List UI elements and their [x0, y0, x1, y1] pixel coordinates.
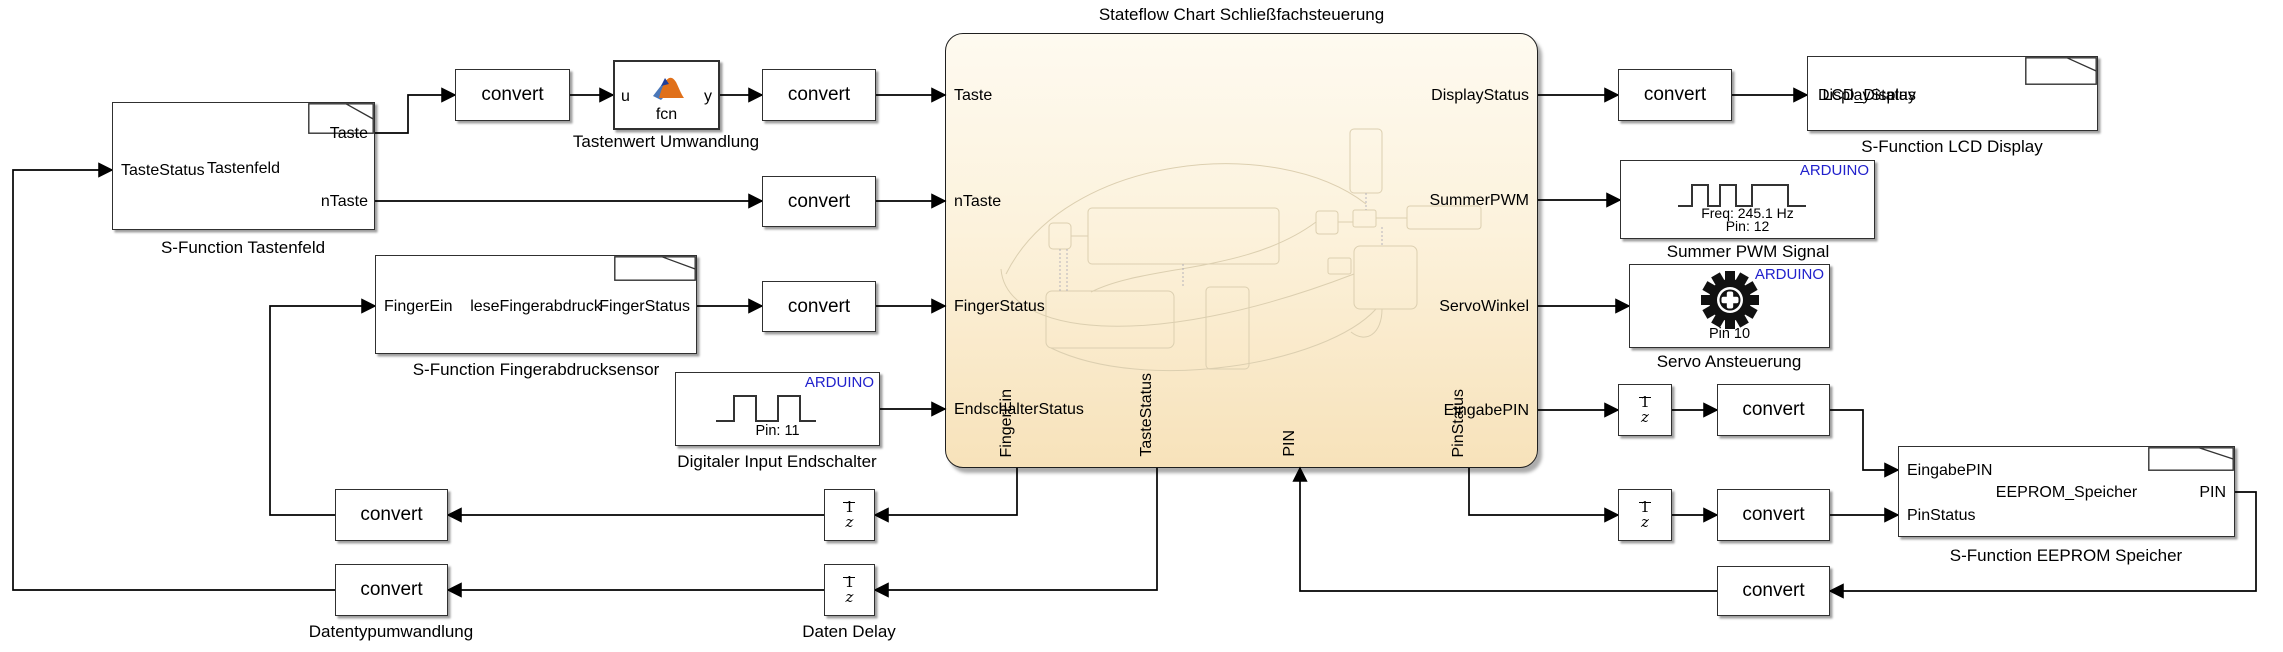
lcd-display-block[interactable]: DisplayStatus LCD_Display	[1807, 56, 2098, 131]
chart-output-summerpwm: SummerPWM	[1429, 192, 1529, 210]
summer-pin-label: Pin: 12	[1621, 220, 1874, 233]
chart-bottom-port-pinstatus: PinStatus	[1450, 389, 1468, 457]
fingerabdruck-block[interactable]: FingerEin leseFingerabdruck FingerStatus	[375, 255, 697, 354]
eeprom-block[interactable]: EingabePIN PinStatus EEPROM_Speicher PIN	[1898, 446, 2235, 537]
matlab-logo-icon	[651, 70, 685, 102]
tastenfeld-output-ntaste: nTaste	[321, 193, 368, 211]
convert-label: convert	[788, 191, 850, 213]
convert-block-pinstatus[interactable]: convert	[1717, 489, 1830, 541]
caption-summer: Summer PWM Signal	[1667, 242, 1829, 262]
stateflow-chart-block[interactable]: Taste nTaste FingerStatus EndschalterSta…	[945, 33, 1538, 468]
unit-delay-block-eingabepin[interactable]: 1 z	[1618, 384, 1672, 436]
servo-pin-label: Pin 10	[1630, 328, 1829, 341]
fingerabdruck-output-port: FingerStatus	[599, 298, 690, 316]
convert-label: convert	[360, 579, 422, 601]
convert-block-taste[interactable]: convert	[455, 69, 570, 121]
eeprom-output-pin: PIN	[2199, 484, 2226, 502]
tastenfeld-name: Tastenfeld	[113, 160, 374, 178]
tastenfeld-output-taste: Taste	[330, 125, 368, 143]
digital-input-waveform-icon	[714, 391, 844, 425]
unit-delay-symbol: 1 z	[845, 500, 855, 530]
caption-fingerabdruck: S-Function Fingerabdrucksensor	[413, 360, 660, 380]
convert-label: convert	[788, 296, 850, 318]
fcn-label: fcn	[615, 106, 718, 124]
delay-denominator: z	[846, 590, 854, 605]
delay-denominator: z	[846, 515, 854, 530]
arduino-badge: ARDUINO	[1800, 162, 1869, 179]
convert-label: convert	[1644, 84, 1706, 106]
summer-pwm-block[interactable]: ARDUINO Freq: 245.1 Hz Pin: 12	[1620, 160, 1875, 239]
convert-block-taste2[interactable]: convert	[762, 69, 876, 121]
wire-convert-to-tastenfeld[interactable]	[13, 170, 335, 590]
eeprom-name: EEPROM_Speicher	[1899, 484, 2234, 502]
convert-block-fingerstatus[interactable]: convert	[762, 281, 876, 332]
datentypumwandlung-block[interactable]: convert	[335, 564, 448, 616]
convert-label: convert	[1742, 580, 1804, 602]
unit-delay-symbol: 1 z	[1640, 395, 1650, 425]
wire-taste-to-convert[interactable]	[375, 95, 455, 133]
unit-delay-symbol: 1 z	[845, 575, 855, 605]
endschalter-pin-label: Pin: 11	[676, 425, 879, 438]
convert-block-pin-feedback[interactable]: convert	[1717, 566, 1830, 616]
caption-servo: Servo Ansteuerung	[1657, 352, 1802, 372]
eeprom-input-pinstatus: PinStatus	[1907, 507, 1975, 525]
chart-bottom-port-fingerein: FingerEin	[998, 389, 1016, 457]
caption-datentypumwandlung: Datentypumwandlung	[309, 622, 473, 642]
caption-endschalter: Digitaler Input Endschalter	[677, 452, 876, 472]
caption-tastenfeld: S-Function Tastenfeld	[161, 238, 325, 258]
servo-block[interactable]: ARDUINO Pin 10	[1629, 264, 1830, 348]
unit-delay-block-pinstatus[interactable]: 1 z	[1618, 489, 1672, 541]
simulink-canvas: Stateflow Chart Schließfachsteuerung	[0, 0, 2283, 652]
servo-gear-icon	[1698, 269, 1762, 331]
eeprom-input-eingabepin: EingabePIN	[1907, 462, 1992, 480]
convert-label: convert	[1742, 504, 1804, 526]
lcd-port-and-name: DisplayStatus LCD_Display	[1818, 87, 1822, 105]
caption-eeprom: S-Function EEPROM Speicher	[1950, 546, 2182, 566]
caption-lcd: S-Function LCD Display	[1861, 137, 2042, 157]
caption-daten-delay: Daten Delay	[802, 622, 896, 642]
sfunction-badge-icon	[614, 256, 696, 281]
fcn-output-port: y	[704, 88, 712, 106]
convert-label: convert	[481, 84, 543, 106]
chart-input-endschalterstatus: EndschalterStatus	[954, 401, 1084, 419]
convert-label: convert	[1742, 399, 1804, 421]
wire-fingerein-to-delay[interactable]	[875, 468, 1017, 515]
delay-denominator: z	[1641, 410, 1649, 425]
chart-input-fingerstatus: FingerStatus	[954, 298, 1045, 316]
tastenfeld-block[interactable]: TasteStatus Tastenfeld Taste nTaste	[112, 102, 375, 230]
chart-input-ntaste: nTaste	[954, 193, 1001, 211]
convert-label: convert	[788, 84, 850, 106]
lcd-name: LCD_Display	[1822, 87, 1915, 105]
daten-delay-block[interactable]: 1 z	[824, 564, 875, 616]
wire-convert-to-fingerabdruck[interactable]	[270, 306, 375, 515]
chart-input-taste: Taste	[954, 87, 992, 105]
fcn-input-port: u	[621, 88, 630, 106]
convert-block-displaystatus[interactable]: convert	[1618, 69, 1732, 121]
arduino-badge: ARDUINO	[1755, 266, 1824, 283]
matlab-function-block[interactable]: u y fcn	[613, 60, 720, 130]
unit-delay-symbol: 1 z	[1640, 500, 1650, 530]
caption-tastenwert: Tastenwert Umwandlung	[573, 132, 759, 152]
wire-pinstatus-to-delay[interactable]	[1469, 468, 1618, 515]
convert-block-eingabepin[interactable]: convert	[1717, 384, 1830, 436]
convert-block-ntaste[interactable]: convert	[762, 176, 876, 227]
chart-bottom-port-tastestatus: TasteStatus	[1138, 373, 1156, 457]
endschalter-block[interactable]: ARDUINO Pin: 11	[675, 372, 880, 446]
wire-tastestatus-to-delay[interactable]	[875, 468, 1157, 590]
stateflow-chart-title: Stateflow Chart Schließfachsteuerung	[945, 5, 1538, 25]
delay-denominator: z	[1641, 515, 1649, 530]
convert-label: convert	[360, 504, 422, 526]
sfunction-badge-icon	[2148, 447, 2234, 471]
chart-output-displaystatus: DisplayStatus	[1431, 87, 1529, 105]
wire-convert-to-eeprom-in1[interactable]	[1830, 410, 1898, 470]
arduino-badge: ARDUINO	[805, 374, 874, 391]
sfunction-badge-icon	[2025, 57, 2097, 85]
unit-delay-block-fingerein[interactable]: 1 z	[824, 489, 875, 541]
chart-bottom-port-pin: PIN	[1281, 430, 1299, 457]
convert-block-fingerein[interactable]: convert	[335, 489, 448, 541]
chart-output-servowinkel: ServoWinkel	[1439, 298, 1529, 316]
